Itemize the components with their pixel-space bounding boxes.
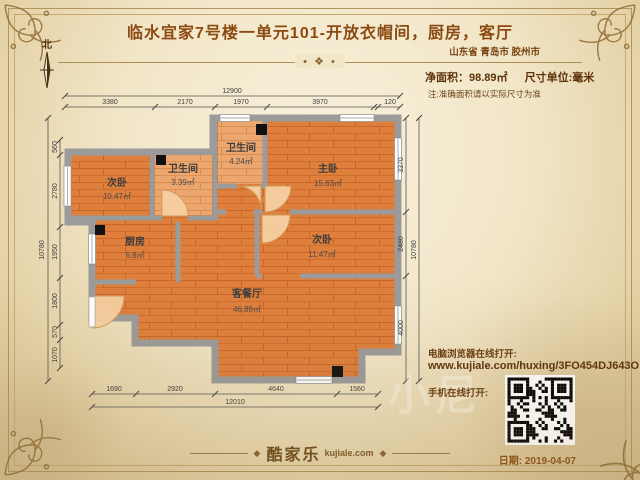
dim-top-total: 12900 — [222, 88, 242, 95]
dim-right-2: 2480 — [398, 236, 405, 252]
dim-bottom-2: 2920 — [167, 386, 183, 393]
share-url-link[interactable]: www.kujiale.com/huxing/3FO454DJ643O — [428, 360, 639, 372]
floorplan-poster: 临水宜家7号楼一单元101-开放衣帽间，厨房，客厅 山东省 青岛市 胶州市 • … — [0, 0, 640, 480]
dim-left-2: 2780 — [52, 183, 59, 199]
dim-right-total: 10780 — [411, 240, 418, 260]
dim-top-4: 3970 — [312, 99, 328, 106]
dim-bottom-1: 1690 — [106, 386, 122, 393]
dim-top-1: 3380 — [102, 99, 118, 106]
dim-top-5: 120 — [384, 99, 396, 106]
pc-open-label: 电脑浏览器在线打开: — [428, 346, 517, 360]
room-label-bath1: 卫生间 — [168, 162, 198, 175]
room-area-bath2: 4.24㎡ — [229, 157, 253, 166]
dim-top-2: 2170 — [177, 99, 193, 106]
qr-code — [505, 375, 575, 445]
room-area-bedroom2: 10.47㎡ — [103, 192, 131, 201]
brand-dot-icon: ◆ — [380, 448, 387, 459]
dim-left-3: 1950 — [52, 244, 59, 260]
dim-right-3: 4000 — [398, 320, 405, 336]
entry-door-opening — [89, 297, 95, 327]
room-area-living-dining: 46.89㎡ — [233, 305, 261, 314]
room-area-bedroom3: 11.47㎡ — [308, 250, 335, 259]
mobile-open-label: 手机在线打开: — [428, 385, 488, 399]
room-label-bedroom3: 次卧 — [312, 233, 332, 246]
room-label-living-dining: 客餐厅 — [231, 287, 262, 300]
dim-left-6: 1070 — [52, 347, 59, 363]
room-area-bath1: 3.39㎡ — [171, 178, 195, 187]
dim-bottom-4: 1560 — [349, 386, 365, 393]
room-label-master-bedroom: 主卧 — [318, 162, 338, 175]
brand-dot-icon: ◆ — [254, 448, 261, 459]
dim-right-1: 3370 — [398, 157, 405, 173]
brand-rule-right — [392, 453, 450, 454]
dim-left-1: 560 — [52, 141, 59, 153]
room-area-kitchen: 6.8㎡ — [125, 251, 144, 260]
brand-domain: kujiale.com — [324, 448, 373, 458]
dim-bottom-3: 4640 — [268, 386, 284, 393]
brand-name: 酷家乐 — [266, 441, 320, 465]
brand-rule-left — [190, 453, 248, 454]
brand-footer: ◆ 酷家乐 kujiale.com ◆ — [0, 441, 640, 465]
dim-left-5: 570 — [52, 326, 59, 338]
dim-left-4: 1800 — [52, 293, 59, 309]
room-label-bedroom2: 次卧 — [107, 176, 127, 189]
dim-top-3: 1970 — [233, 99, 249, 106]
room-area-master-bedroom: 15.63㎡ — [314, 179, 342, 188]
room-label-kitchen: 厨房 — [125, 235, 145, 248]
room-label-bath2: 卫生间 — [226, 141, 256, 154]
dim-left-total: 10780 — [39, 240, 46, 260]
dim-bottom-total: 12010 — [225, 399, 245, 406]
